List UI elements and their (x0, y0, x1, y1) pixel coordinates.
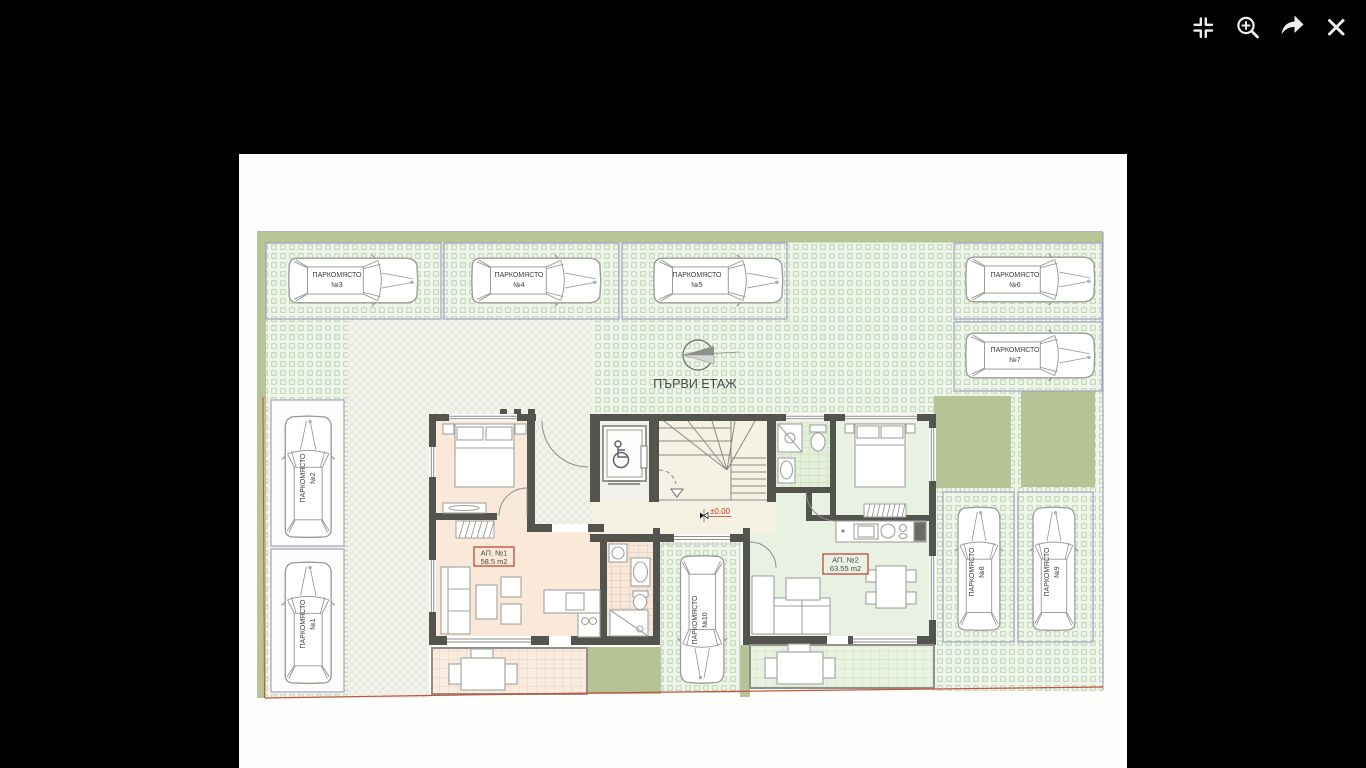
svg-text:58.5 m2: 58.5 m2 (480, 557, 507, 566)
svg-text:№7: №7 (1009, 357, 1021, 364)
svg-text:±0.00: ±0.00 (710, 507, 731, 516)
svg-text:ПАРКОМЯСТО: ПАРКОМЯСТО (300, 453, 307, 502)
svg-text:№10: №10 (702, 612, 709, 627)
svg-text:ПЪРВИ ЕТАЖ: ПЪРВИ ЕТАЖ (653, 377, 737, 391)
svg-text:№9: №9 (1054, 566, 1061, 578)
svg-text:№1: №1 (310, 618, 317, 630)
svg-text:№4: №4 (513, 282, 525, 289)
svg-text:№6: №6 (1009, 282, 1021, 289)
svg-text:№8: №8 (979, 566, 986, 578)
svg-text:ПАРКОМЯСТО: ПАРКОМЯСТО (991, 272, 1040, 279)
svg-text:ПАРКОМЯСТО: ПАРКОМЯСТО (1044, 547, 1051, 596)
svg-text:ПАРКОМЯСТО: ПАРКОМЯСТО (969, 547, 976, 596)
svg-text:63.55 m2: 63.55 m2 (830, 564, 861, 573)
svg-text:№2: №2 (310, 472, 317, 484)
svg-text:ПАРКОМЯСТО: ПАРКОМЯСТО (692, 595, 699, 644)
svg-text:ПАРКОМЯСТО: ПАРКОМЯСТО (495, 272, 544, 279)
svg-text:ПАРКОМЯСТО: ПАРКОМЯСТО (991, 347, 1040, 354)
svg-text:ПАРКОМЯСТО: ПАРКОМЯСТО (313, 272, 362, 279)
svg-text:ПАРКОМЯСТО: ПАРКОМЯСТО (673, 272, 722, 279)
svg-text:ПАРКОМЯСТО: ПАРКОМЯСТО (300, 599, 307, 648)
svg-text:№3: №3 (331, 282, 343, 289)
svg-text:№5: №5 (691, 282, 703, 289)
